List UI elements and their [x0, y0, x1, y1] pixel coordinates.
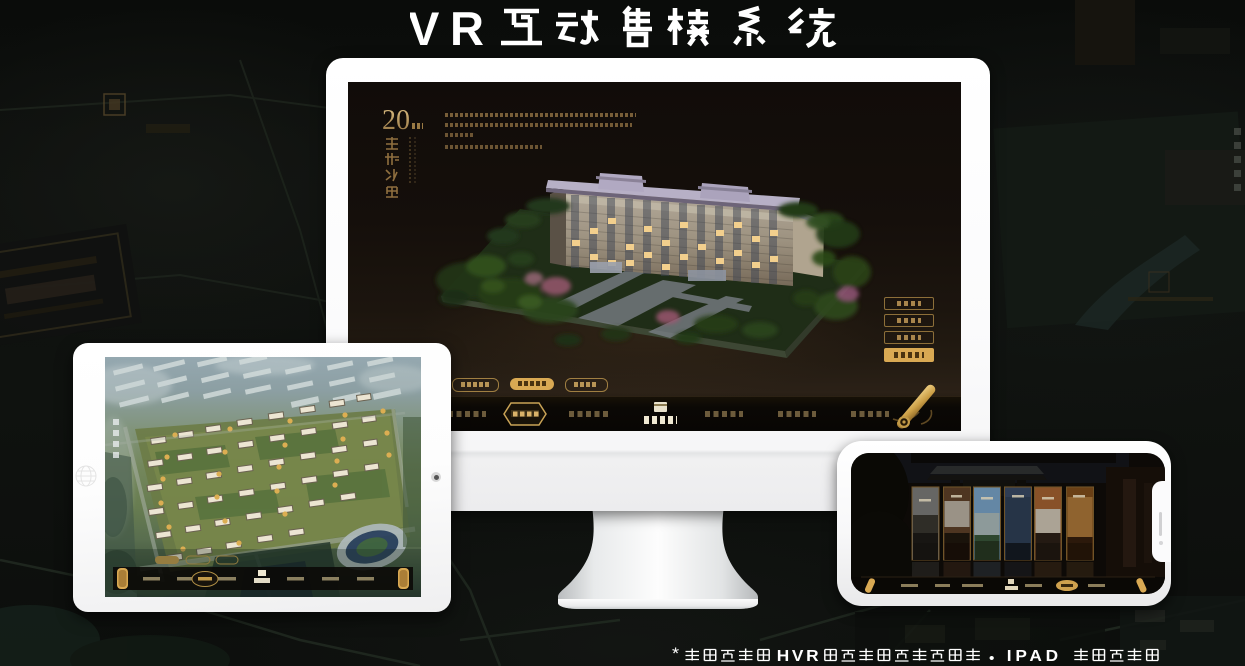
svg-text:*: *: [672, 645, 679, 663]
svg-text:V: V: [410, 2, 440, 54]
svg-text:HVR: HVR: [777, 647, 822, 665]
svg-text:R: R: [450, 2, 484, 54]
svg-text:IPAD: IPAD: [1007, 647, 1062, 665]
